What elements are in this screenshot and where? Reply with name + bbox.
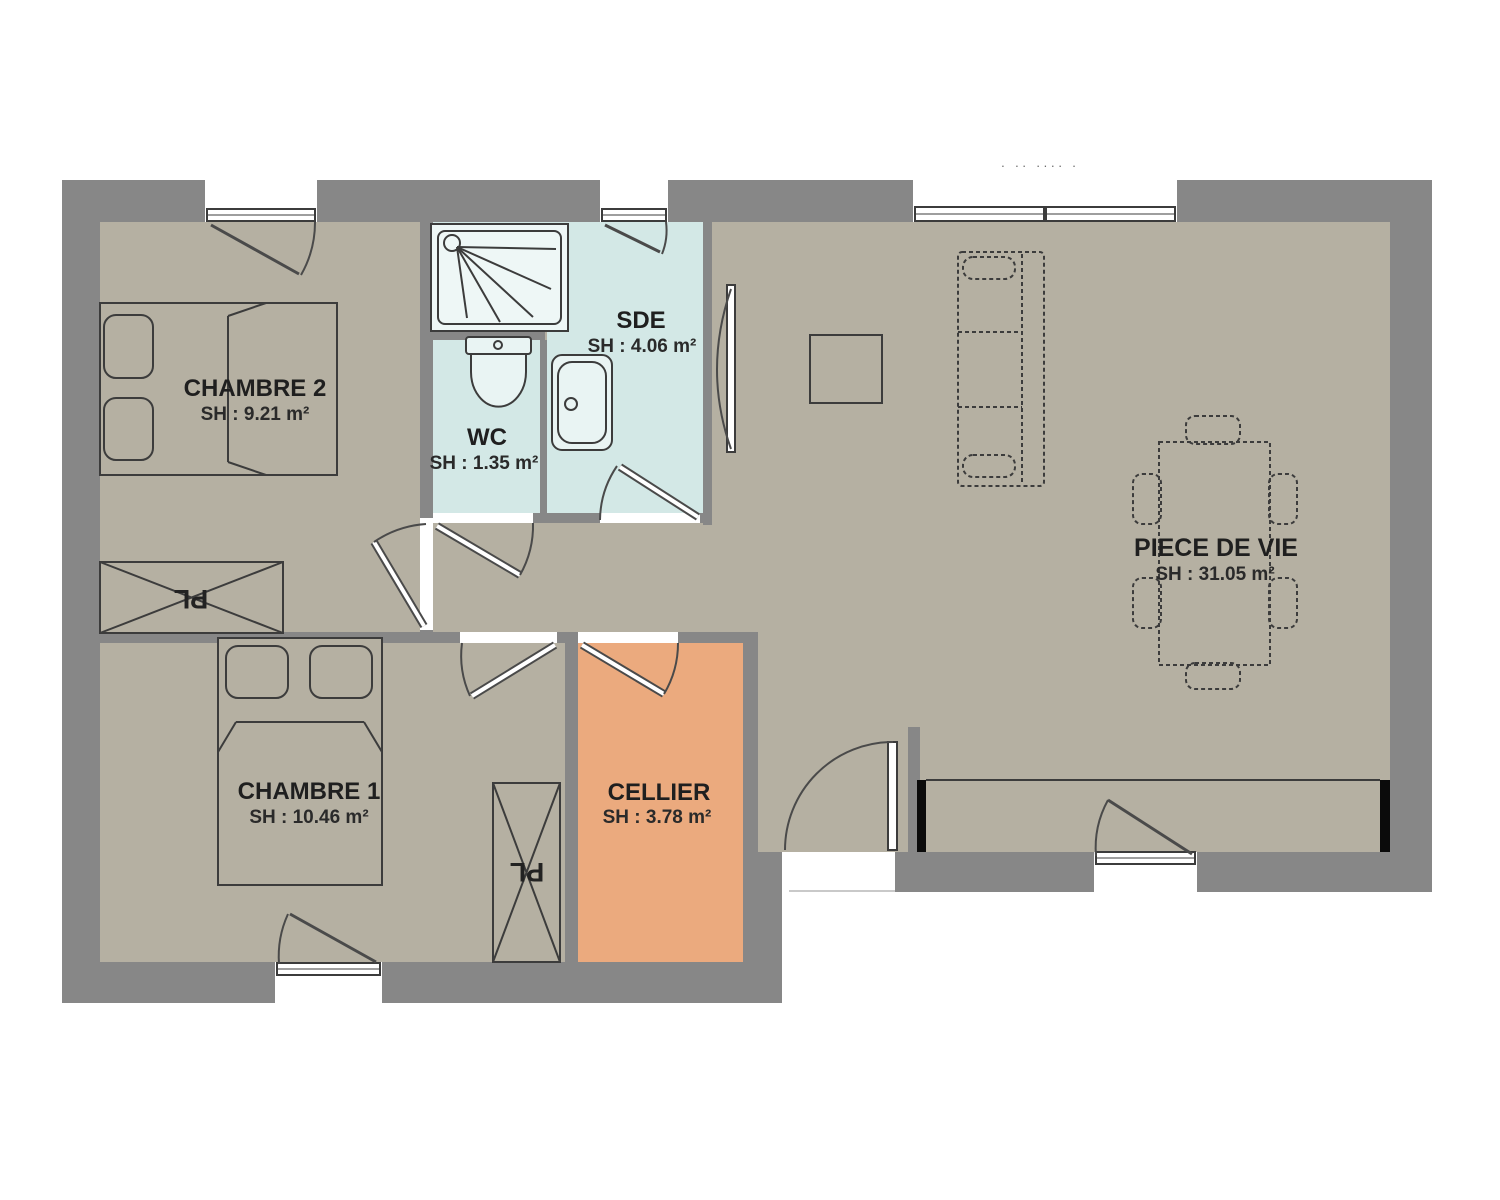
opening-door-chambre2 xyxy=(420,518,433,630)
room-name: SDE xyxy=(616,307,665,334)
label-cellier: CELLIER SH : 3.78 m² xyxy=(603,779,712,828)
opening-door-wc xyxy=(433,513,533,523)
wall-bottom-left xyxy=(62,962,782,1003)
floor-plan-canvas: · ·· ···· · CHAMBRE 2 SH : 9.21 m² WC SH… xyxy=(0,0,1500,1200)
wall-left xyxy=(62,180,100,1003)
room-name: CELLIER xyxy=(608,779,711,806)
top-text-fragment: · ·· ···· · xyxy=(1001,158,1079,173)
wall-wet-bottom-b xyxy=(533,513,600,523)
label-piece-de-vie: PIECE DE VIE SH : 31.05 m² xyxy=(1134,534,1298,585)
opening-door-cellier xyxy=(578,632,678,643)
opening-door-chambre1 xyxy=(460,632,557,643)
room-name: CHAMBRE 1 xyxy=(238,778,381,805)
wall-end-right xyxy=(1380,780,1390,852)
wall-cellier-left xyxy=(565,632,578,962)
wall-end-left xyxy=(917,780,926,852)
room-area: SH : 10.46 m² xyxy=(249,807,368,828)
room-area: SH : 4.06 m² xyxy=(588,336,697,357)
floor-plan: · ·· ···· · CHAMBRE 2 SH : 9.21 m² WC SH… xyxy=(0,0,1500,1200)
wall-wc-sde xyxy=(540,340,547,513)
bed-chambre1-icon xyxy=(218,638,382,885)
room-area: SH : 9.21 m² xyxy=(201,404,310,425)
room-area: SH : 31.05 m² xyxy=(1155,564,1274,585)
room-name: CHAMBRE 2 xyxy=(184,375,327,402)
wall-cellier-right-base xyxy=(743,852,782,962)
room-name: PIECE DE VIE xyxy=(1134,534,1298,562)
label-chambre1: CHAMBRE 1 SH : 10.46 m² xyxy=(238,778,381,828)
window-living-double-icon xyxy=(915,207,1175,221)
opening-door-sde xyxy=(600,513,700,523)
room-area: SH : 1.35 m² xyxy=(430,453,539,474)
wall-sde-right xyxy=(703,222,712,525)
shower-icon xyxy=(431,224,568,331)
room-name: WC xyxy=(467,424,507,451)
label-chambre2: CHAMBRE 2 SH : 9.21 m² xyxy=(184,375,327,425)
wall-cellier-right xyxy=(743,632,758,852)
label-pl1: PL xyxy=(174,584,209,614)
label-pl2: PL xyxy=(510,857,545,887)
sink-icon xyxy=(552,355,612,450)
room-area: SH : 3.78 m² xyxy=(603,807,712,828)
wall-right xyxy=(1390,180,1432,892)
